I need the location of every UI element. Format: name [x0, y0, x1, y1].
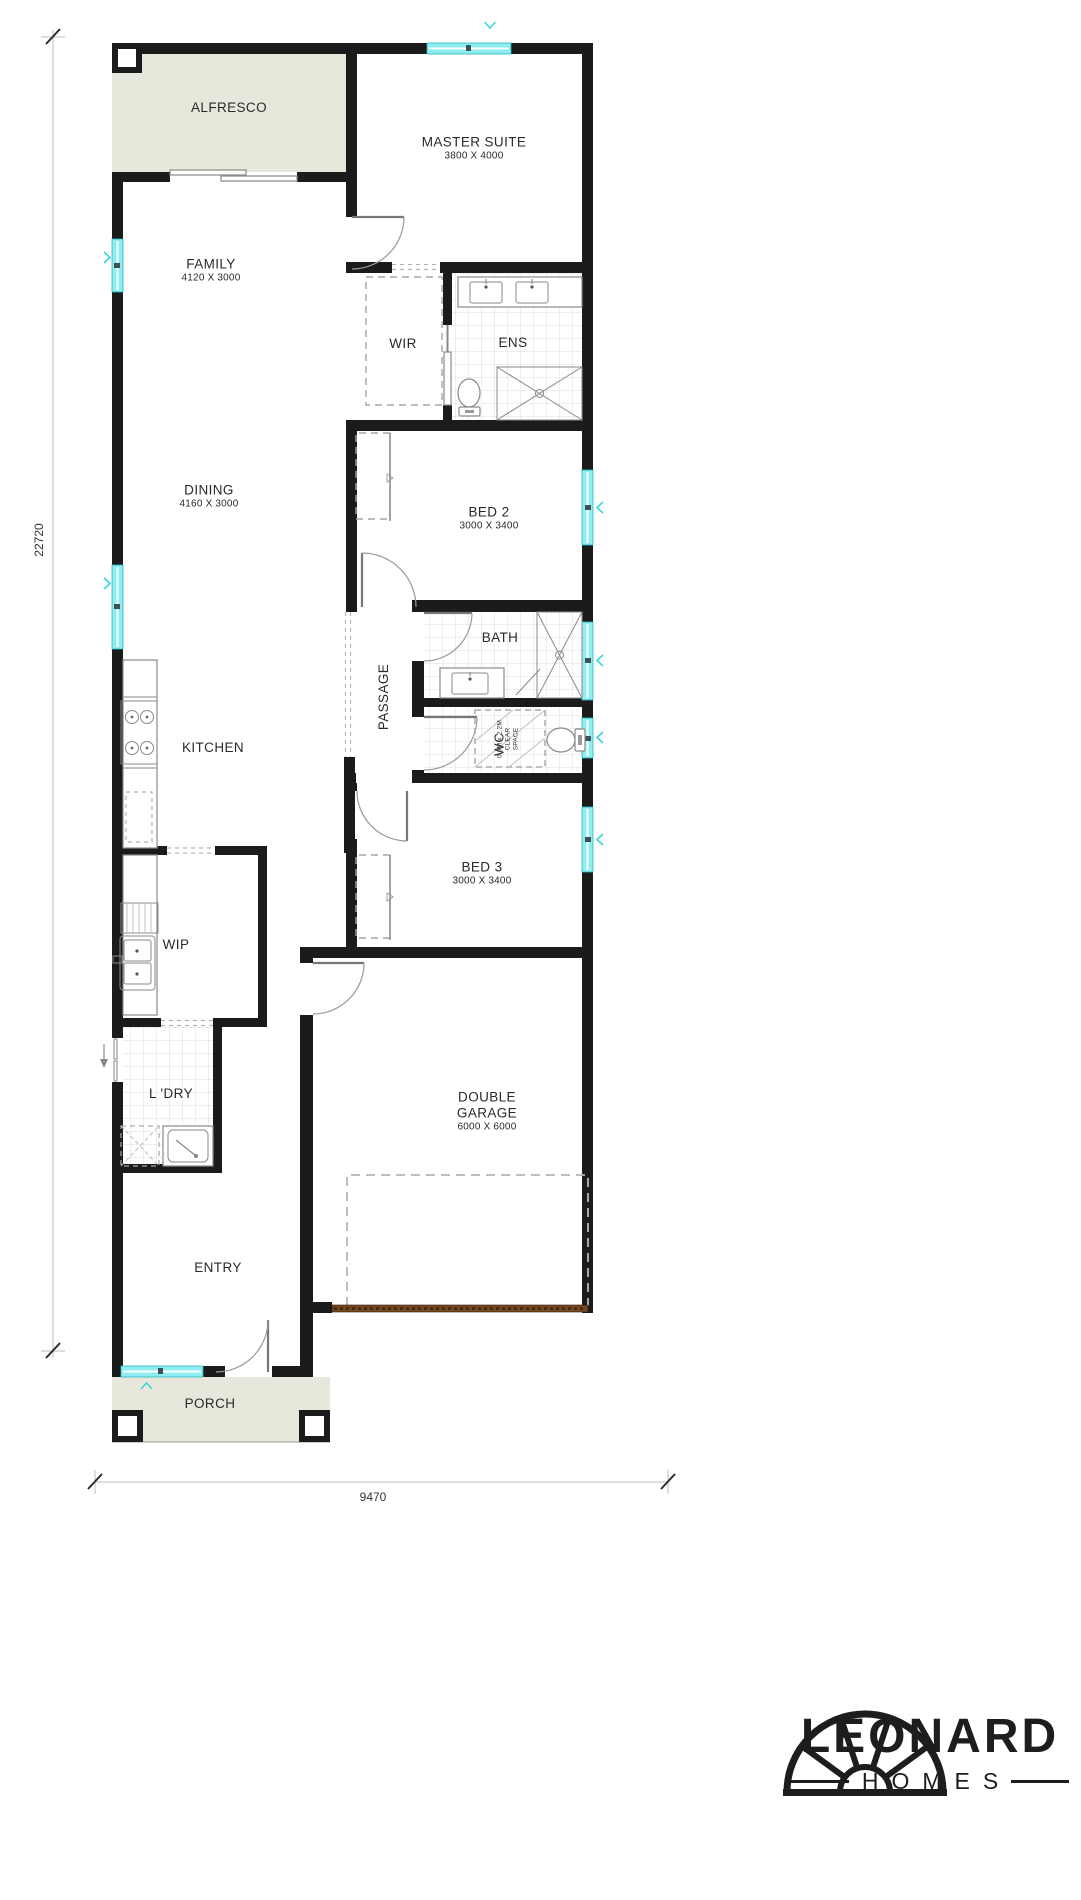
- room-label-kitchen: KITCHEN: [182, 740, 244, 756]
- window: [121, 1366, 203, 1377]
- window-marker-icon: [597, 655, 603, 666]
- ens-toilet-icon: [458, 379, 480, 416]
- bed3-robe: [356, 855, 393, 940]
- window-marker-icon: [597, 732, 603, 743]
- room-label-laundry: L 'DRY: [149, 1086, 193, 1102]
- room-label-garage: DOUBLEGARAGE6000 X 6000: [457, 1090, 517, 1135]
- room-label-wip: WIP: [163, 937, 190, 953]
- room-label-dining: DINING4160 X 3000: [180, 483, 239, 512]
- room-label-alfresco: ALFRESCO: [191, 100, 267, 116]
- overall-width-dimension: 9470: [360, 1490, 387, 1504]
- window: [112, 239, 123, 292]
- bed2-robe: [356, 433, 393, 521]
- room-label-ens: ENS: [499, 335, 528, 351]
- window: [582, 807, 593, 872]
- window-marker-icon: [104, 252, 110, 263]
- front-door: [216, 1320, 268, 1372]
- window-marker-icon: [485, 22, 496, 28]
- window-marker-icon: [104, 578, 110, 589]
- floorplan-canvas: ALFRESCO MASTER SUITE3800 X 4000 FAMILY4…: [0, 0, 1081, 1900]
- porch-post: [112, 1410, 143, 1442]
- ens-door: [444, 325, 451, 405]
- laundry-external-door: [100, 1038, 123, 1082]
- window-marker-icon: [597, 502, 603, 513]
- porch-post: [299, 1410, 330, 1442]
- window: [112, 565, 123, 649]
- garage-opening-outline: [347, 1175, 588, 1306]
- room-label-wc: WC: [492, 732, 507, 756]
- divider-line: [1011, 1780, 1069, 1783]
- room-label-passage: PASSAGE: [376, 664, 392, 730]
- arrow-icon: [100, 1059, 108, 1068]
- bath-vanity-icon: [440, 668, 504, 698]
- overall-depth-dimension: 22720: [32, 523, 46, 556]
- room-label-bed3: BED 33000 X 3400: [453, 860, 512, 889]
- laundry-tub-icon: [163, 1126, 213, 1166]
- openings: [161, 265, 440, 1026]
- ens-vanity-icon: [458, 277, 582, 307]
- window: [582, 622, 593, 700]
- room-label-bed2: BED 23000 X 3400: [460, 505, 519, 534]
- room-label-bath: BATH: [482, 630, 519, 646]
- room-label-master-suite: MASTER SUITE3800 X 4000: [422, 135, 527, 164]
- alfresco-post: [112, 43, 142, 73]
- fanlight-icon: [780, 1706, 950, 1796]
- room-label-wir: WIR: [389, 336, 416, 352]
- window: [427, 43, 511, 54]
- room-label-porch: PORCH: [185, 1396, 236, 1412]
- window: [582, 470, 593, 545]
- garage-door-group: [332, 1175, 588, 1312]
- room-label-family: FAMILY4120 X 3000: [182, 257, 241, 286]
- room-label-entry: ENTRY: [194, 1260, 242, 1276]
- bed3-door: [357, 791, 407, 841]
- brand-logo: LEONARD HOMES: [780, 1706, 1080, 1793]
- tiled-floors: [123, 273, 582, 1164]
- master-door: [352, 217, 404, 269]
- garage-internal-door: [313, 963, 364, 1014]
- kitchen-bench: [121, 660, 157, 848]
- bed2-door: [362, 553, 416, 607]
- window-marker-icon: [597, 834, 603, 845]
- wc-toilet-icon: [547, 728, 585, 752]
